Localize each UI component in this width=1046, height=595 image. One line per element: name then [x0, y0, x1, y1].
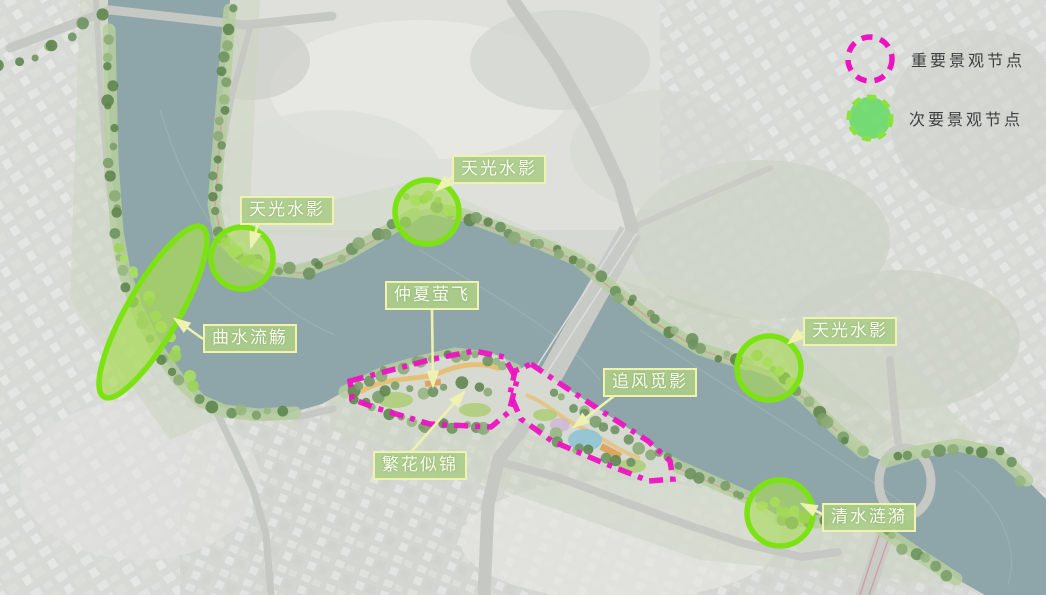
legend-item-secondary: 次要景观节点: [845, 93, 1023, 143]
legend-label-secondary: 次要景观节点: [909, 106, 1023, 130]
secondary-node-swatch-icon: [845, 93, 895, 143]
secondary-node-marker: [395, 180, 459, 244]
node-label: 曲水流觞: [203, 324, 297, 353]
secondary-node-marker: [737, 336, 801, 400]
important-node-swatch-icon: [843, 32, 897, 86]
leader-line: [432, 309, 433, 386]
node-label: 天光水影: [803, 317, 897, 346]
legend-item-important: 重要景观节点: [843, 32, 1025, 86]
node-label: 天光水影: [240, 196, 334, 225]
node-label: 仲夏萤飞: [385, 281, 479, 310]
node-label: 追风觅影: [603, 368, 697, 397]
node-label: 天光水影: [452, 155, 546, 184]
node-label: 清水涟漪: [822, 503, 916, 532]
legend-label-important: 重要景观节点: [911, 47, 1025, 71]
secondary-node-marker: [747, 480, 813, 546]
node-label: 繁花似锦: [373, 451, 467, 480]
landscape-node-analysis-map: 天光水影天光水影天光水影曲水流觞仲夏萤飞繁花似锦追风觅影清水涟漪 重要景观节点 …: [0, 0, 1046, 595]
secondary-node-marker: [211, 227, 273, 289]
